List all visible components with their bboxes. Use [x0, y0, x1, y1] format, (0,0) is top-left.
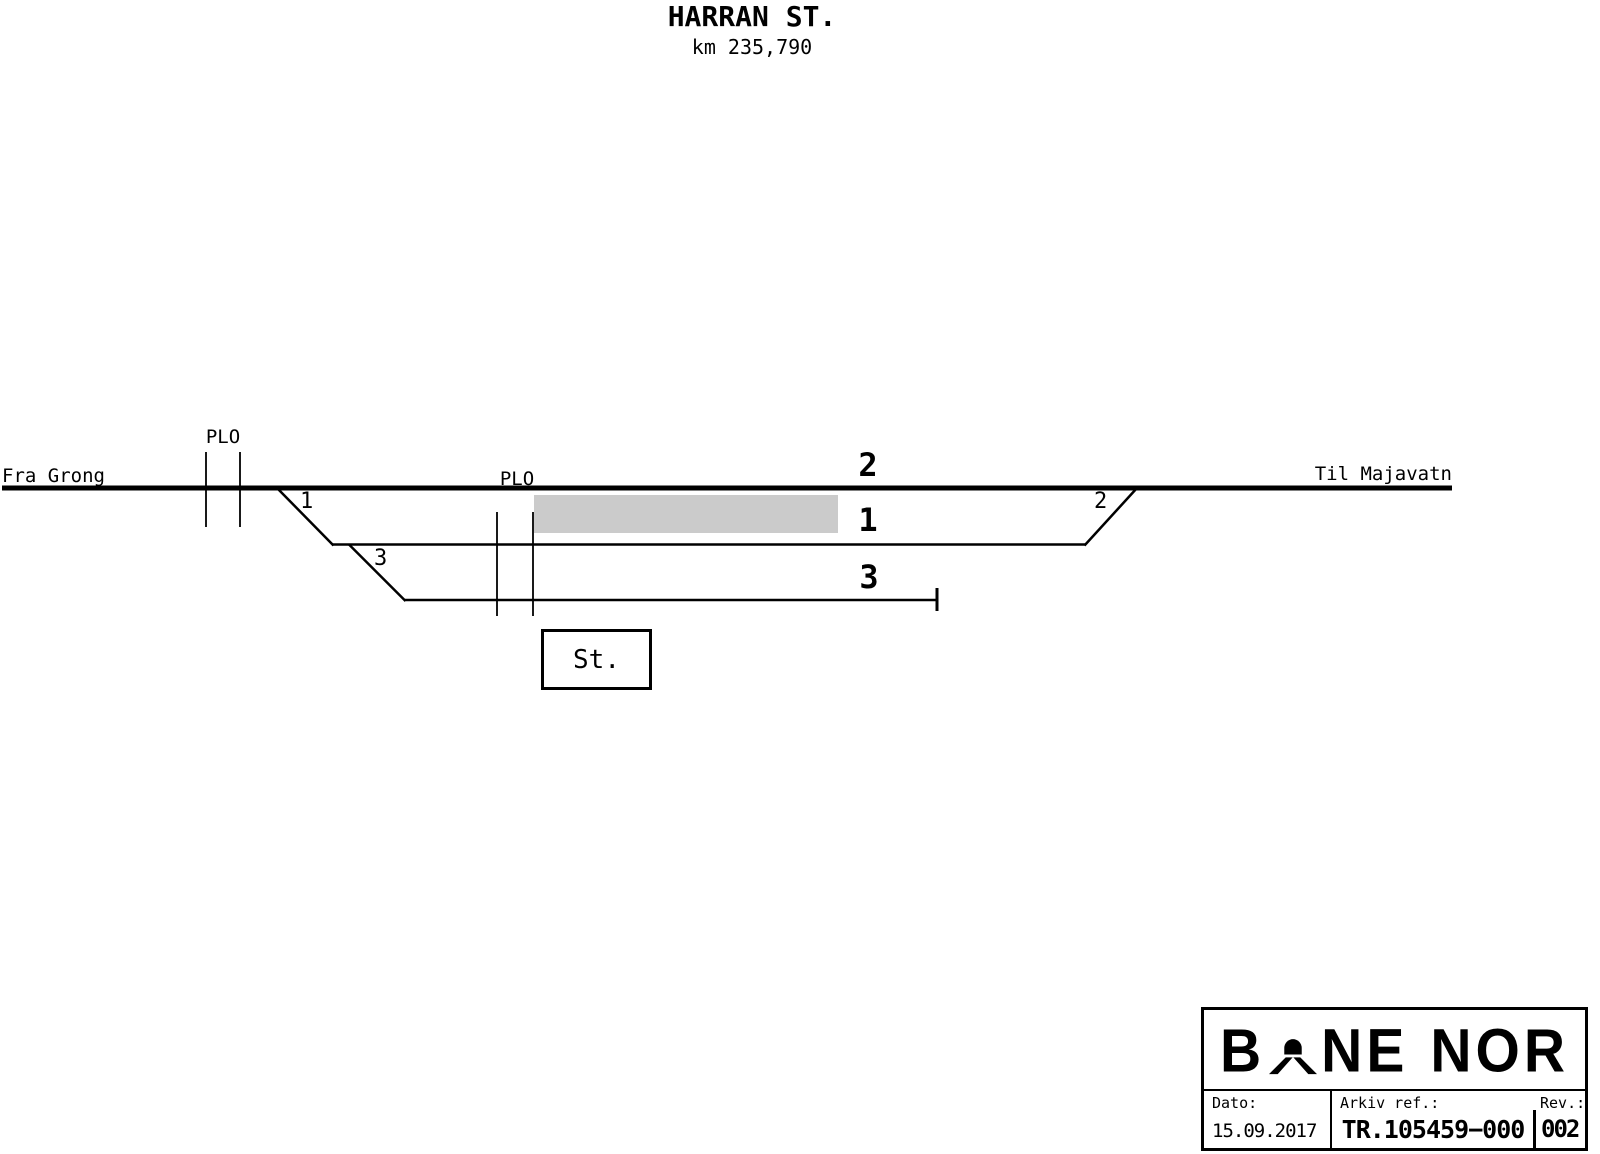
direction-label-til-majavatn: Til Majavatn [1315, 463, 1452, 485]
page-title: HARRAN ST. [0, 2, 1504, 32]
switch-3-number: 3 [374, 546, 387, 571]
track-2-number: 2 [838, 446, 898, 484]
title-block-info-row: Dato: 15.09.2017 Arkiv ref.: TR.105459−0… [1204, 1089, 1585, 1148]
plo-1-label: PLO [183, 426, 263, 448]
station-building-box: St. [541, 629, 652, 690]
revision-cell: Rev.: 002 [1534, 1091, 1585, 1148]
track-1-number: 1 [838, 501, 898, 539]
archive-ref-value: TR.105459−000 [1332, 1115, 1534, 1144]
bane-nor-portal-icon [1269, 1031, 1317, 1075]
date-cell: Dato: 15.09.2017 [1204, 1091, 1332, 1148]
track-diagram [0, 0, 1600, 1154]
station-schematic-page: HARRAN ST. km 235,790 Fra Grong Til Maja… [0, 0, 1600, 1154]
date-label: Dato: [1212, 1094, 1257, 1112]
title-block: B NE NOR Dato: 15.09.2017 Arkiv ref.: TR… [1201, 1007, 1588, 1151]
logo-letters-ne: NE [1321, 1020, 1408, 1082]
direction-label-fra-grong: Fra Grong [2, 465, 105, 487]
archive-ref-cell: Arkiv ref.: TR.105459−000 [1332, 1091, 1534, 1148]
logo-letter-b: B [1220, 1020, 1265, 1082]
date-value: 15.09.2017 [1212, 1120, 1316, 1142]
switch-1-number: 1 [300, 489, 313, 514]
logo-letters-nor: NOR [1430, 1020, 1569, 1082]
revision-value: 002 [1541, 1115, 1578, 1143]
platform [534, 495, 838, 533]
switch-2-diagonal [1085, 488, 1138, 546]
station-building-label: St. [573, 645, 620, 675]
bane-nor-logo: B NE NOR [1204, 1010, 1585, 1092]
track-3-number: 3 [839, 558, 899, 596]
archive-ref-label: Arkiv ref.: [1340, 1094, 1439, 1112]
km-subtitle: km 235,790 [0, 35, 1504, 59]
switch-2-number: 2 [1094, 489, 1107, 514]
title-group: HARRAN ST. km 235,790 [0, 2, 1504, 59]
revision-label: Rev.: [1540, 1094, 1585, 1112]
